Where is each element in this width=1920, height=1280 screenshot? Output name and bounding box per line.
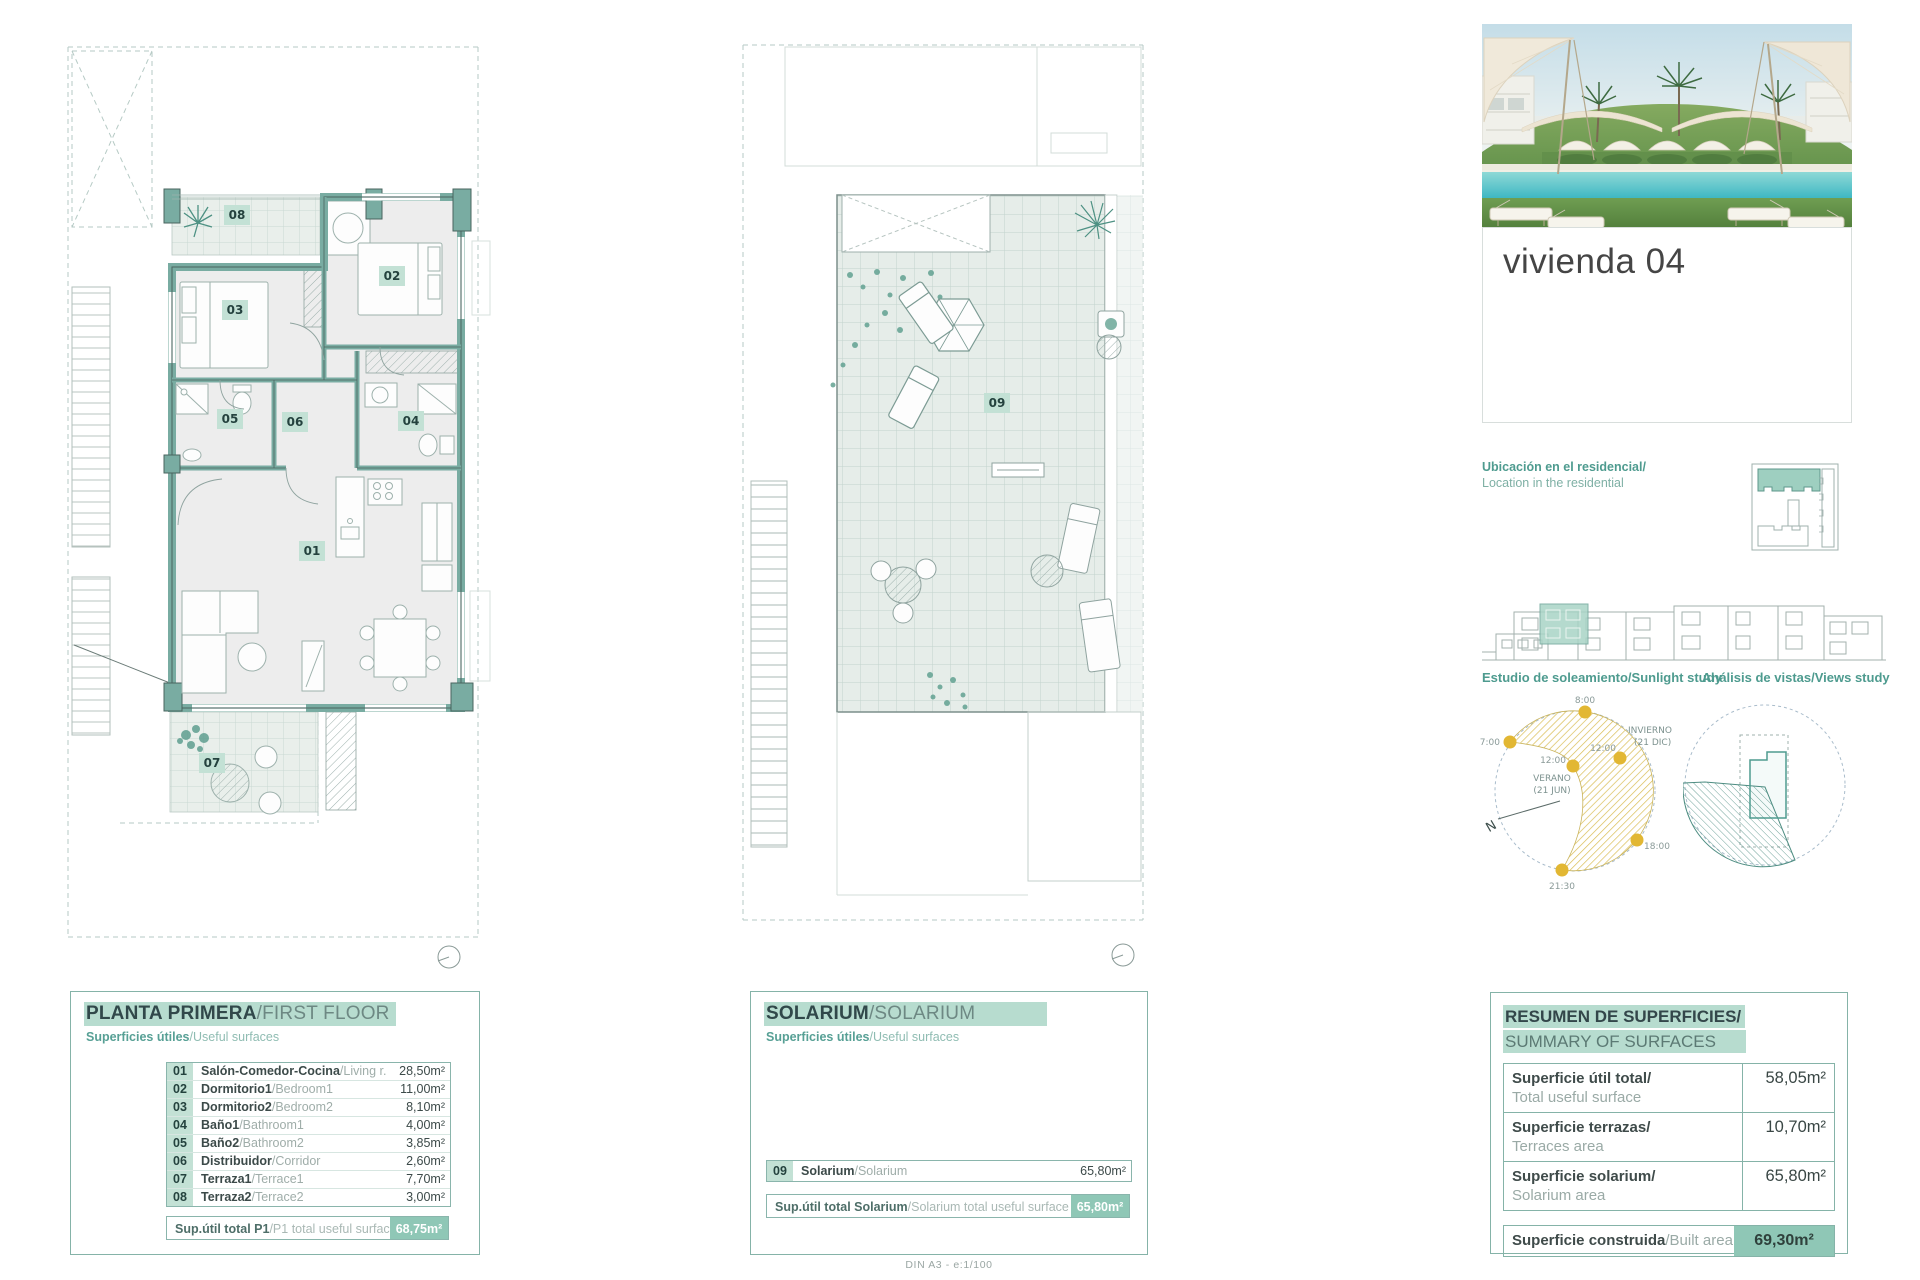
solarium-panel: SOLARIUM/SOLARIUM Superficies útiles/Use… [750, 991, 1148, 1255]
bench [992, 463, 1044, 477]
badge-02: 02 [384, 269, 401, 283]
lower-roof-outline [837, 712, 1141, 895]
room-number: 03 [167, 1099, 194, 1116]
built-area-row: Superficie construida/Built area 69,30m² [1503, 1225, 1835, 1257]
room-number: 06 [167, 1153, 194, 1170]
solarium-title-es: SOLARIUM [766, 1003, 869, 1024]
pool-render-photo [1482, 24, 1852, 227]
table-row: Superficie solarium/Solarium area 65,80m… [1504, 1162, 1834, 1210]
summary-title: RESUMEN DE SUPERFICIES/ SUMMARY OF SURFA… [1503, 1005, 1835, 1053]
winter-label: INVIERNO [1628, 726, 1672, 736]
solarium-total-row: Sup.útil total Solarium/Solarium total u… [766, 1194, 1130, 1218]
room-number: 07 [167, 1171, 194, 1188]
neighbour-tiles [1117, 195, 1143, 712]
summary-label: Superficie útil total/Total useful surfa… [1504, 1064, 1742, 1112]
room-number: 08 [167, 1189, 194, 1206]
room-badges: 09 [984, 393, 1010, 413]
table-row: 03Dormitorio2/Bedroom28,10m² [167, 1099, 450, 1117]
table-row: 06Distribuidor/Corridor2,60m² [167, 1153, 450, 1171]
north-label: N [1484, 818, 1500, 836]
summer-label: VERANO [1533, 774, 1571, 784]
sun-time-2130: 21:30 [1549, 882, 1575, 892]
first-floor-title: PLANTA PRIMERA/FIRST FLOOR [84, 1002, 396, 1026]
solarium-table: 09 Solarium/Solarium 65,80m² [766, 1160, 1132, 1182]
summary-table: Superficie útil total/Total useful surfa… [1503, 1063, 1835, 1211]
subtitle-es: Superficies útiles [86, 1030, 190, 1044]
neighbour-unit-hint [470, 241, 490, 681]
room-name: Distribuidor/Corridor [194, 1153, 387, 1170]
sun-time-0800: 8:00 [1575, 696, 1595, 706]
first-floor-plan: 01 02 03 04 05 06 07 08 [60, 35, 550, 975]
room-area: 7,70m² [387, 1171, 450, 1188]
room-name: Baño1/Bathroom1 [194, 1117, 387, 1134]
room-area: 4,00m² [387, 1117, 450, 1134]
room-name: Terraza1/Terrace1 [194, 1171, 387, 1188]
room-area: 2,60m² [387, 1153, 450, 1170]
solarium-subtitle: Superficies útiles/Useful surfaces [766, 1030, 1134, 1044]
page-title: vivienda 04 [1503, 242, 1851, 282]
communal-stairs [72, 287, 170, 735]
summary-title-en: SUMMARY OF SURFACES [1503, 1030, 1746, 1053]
room-number: 09 [767, 1161, 794, 1181]
total-value: 68,75m² [390, 1217, 448, 1239]
summary-label: Superficie solarium/Solarium area [1504, 1162, 1742, 1210]
table-row: 04Baño1/Bathroom14,00m² [167, 1117, 450, 1135]
badge-08: 08 [229, 208, 246, 222]
badge-07: 07 [204, 756, 221, 770]
room-number: 04 [167, 1117, 194, 1134]
sunlight-study-label: Estudio de soleamiento/Sunlight study [1482, 670, 1722, 685]
first-floor-title-es: PLANTA PRIMERA [86, 1003, 257, 1024]
first-floor-panel: PLANTA PRIMERA/FIRST FLOOR Superficies ú… [70, 991, 480, 1255]
room-number: 05 [167, 1135, 194, 1152]
total-label: Sup.útil total P1/P1 total useful surfac… [167, 1217, 390, 1239]
sun-time-0700: 7:00 [1480, 738, 1500, 748]
room-area: 3,00m² [387, 1189, 450, 1206]
badge-03: 03 [227, 303, 244, 317]
table-row: 01Salón-Comedor-Cocina/Living r.-Kitchen… [167, 1063, 450, 1081]
total-label: Sup.útil total Solarium/Solarium total u… [767, 1195, 1071, 1217]
summer-date: (21 JUN) [1533, 786, 1570, 796]
room-name: Terraza2/Terrace2 [194, 1189, 387, 1206]
summary-value: 65,80m² [1742, 1162, 1834, 1210]
first-floor-subtitle: Superficies útiles/Useful surfaces [86, 1030, 466, 1044]
built-area-value: 69,30m² [1734, 1226, 1834, 1256]
summary-value: 10,70m² [1742, 1113, 1834, 1161]
views-study-label: Análisis de vistas/Views study [1702, 670, 1890, 685]
badge-09: 09 [989, 396, 1006, 410]
table-row: 05Baño2/Bathroom23,85m² [167, 1135, 450, 1153]
first-floor-title-en: /FIRST FLOOR [257, 1003, 390, 1024]
solarium-title: SOLARIUM/SOLARIUM [764, 1002, 1047, 1026]
sun-time-1200-winter: 12:00 [1590, 744, 1616, 754]
room-area: 28,50m² [387, 1063, 450, 1080]
room-area: 11,00m² [387, 1081, 450, 1098]
elevation-diagram [1478, 586, 1890, 668]
site-plan-diagram [1750, 462, 1842, 554]
summary-value: 58,05m² [1742, 1064, 1834, 1112]
room-name: Baño2/Bathroom2 [194, 1135, 387, 1152]
upper-roof-outline [785, 47, 1141, 166]
north-line [1498, 801, 1560, 819]
sunlight-diagram: 8:00 7:00 12:00 VERANO (21 JUN) 12:00 IN… [1478, 693, 1688, 898]
table-row: 02Dormitorio1/Bedroom111,00m² [167, 1081, 450, 1099]
badge-06: 06 [287, 415, 304, 429]
table-row: 07Terraza1/Terrace17,70m² [167, 1171, 450, 1189]
scale-note: DIN A3 - e:1/100 [750, 1259, 1148, 1271]
badge-01: 01 [304, 544, 321, 558]
summary-label: Superficie terrazas/Terraces area [1504, 1113, 1742, 1161]
total-value: 65,80m² [1071, 1195, 1129, 1217]
views-diagram [1683, 695, 1883, 895]
built-area-label: Superficie construida/Built area [1504, 1226, 1734, 1256]
room-number: 02 [167, 1081, 194, 1098]
room-name: Dormitorio1/Bedroom1 [194, 1081, 387, 1098]
room-area: 3,85m² [387, 1135, 450, 1152]
plan-sheet: { "doc": { "scale_note": "DIN A3 - e:1/1… [0, 0, 1920, 1280]
solarium-plan: 09 [735, 35, 1150, 975]
badge-04: 04 [403, 414, 420, 428]
badge-05: 05 [222, 412, 239, 426]
room-name: Solarium/Solarium [794, 1161, 1068, 1181]
stair-strip [751, 481, 787, 847]
void-skylight [842, 195, 990, 252]
solarium-title-en: /SOLARIUM [869, 1003, 975, 1024]
room-number: 01 [167, 1063, 194, 1080]
summary-panel: RESUMEN DE SUPERFICIES/ SUMMARY OF SURFA… [1490, 992, 1848, 1254]
table-row: Superficie útil total/Total useful surfa… [1504, 1064, 1834, 1113]
room-area: 65,80m² [1068, 1161, 1131, 1181]
location-label-en: Location in the residential [1482, 476, 1732, 490]
room-area: 8,10m² [387, 1099, 450, 1116]
orientation-marker-icon [438, 946, 460, 968]
orientation-marker-icon [1112, 944, 1134, 966]
winter-date: (21 DIC) [1634, 738, 1671, 748]
summary-title-es: RESUMEN DE SUPERFICIES/ [1503, 1005, 1745, 1028]
unit-title-box: vivienda 04 [1482, 227, 1852, 423]
room-table: 01Salón-Comedor-Cocina/Living r.-Kitchen… [166, 1062, 451, 1207]
location-section: Ubicación en el residencial/ Location in… [1482, 460, 1732, 490]
table-row: 09 Solarium/Solarium 65,80m² [767, 1161, 1131, 1181]
sun-time-1200-summer: 12:00 [1540, 756, 1566, 766]
subtitle-es: Superficies útiles [766, 1030, 870, 1044]
room-name: Salón-Comedor-Cocina/Living r.-Kitchen [194, 1063, 387, 1080]
room-name: Dormitorio2/Bedroom2 [194, 1099, 387, 1116]
sun-time-1800: 18:00 [1644, 842, 1670, 852]
location-label-es: Ubicación en el residencial/ [1482, 460, 1732, 474]
subtitle-en: /Useful surfaces [190, 1030, 280, 1044]
table-row: 08Terraza2/Terrace23,00m² [167, 1189, 450, 1206]
first-floor-total-row: Sup.útil total P1/P1 total useful surfac… [166, 1216, 449, 1240]
table-row: Superficie terrazas/Terraces area 10,70m… [1504, 1113, 1834, 1162]
subtitle-en: /Useful surfaces [870, 1030, 960, 1044]
